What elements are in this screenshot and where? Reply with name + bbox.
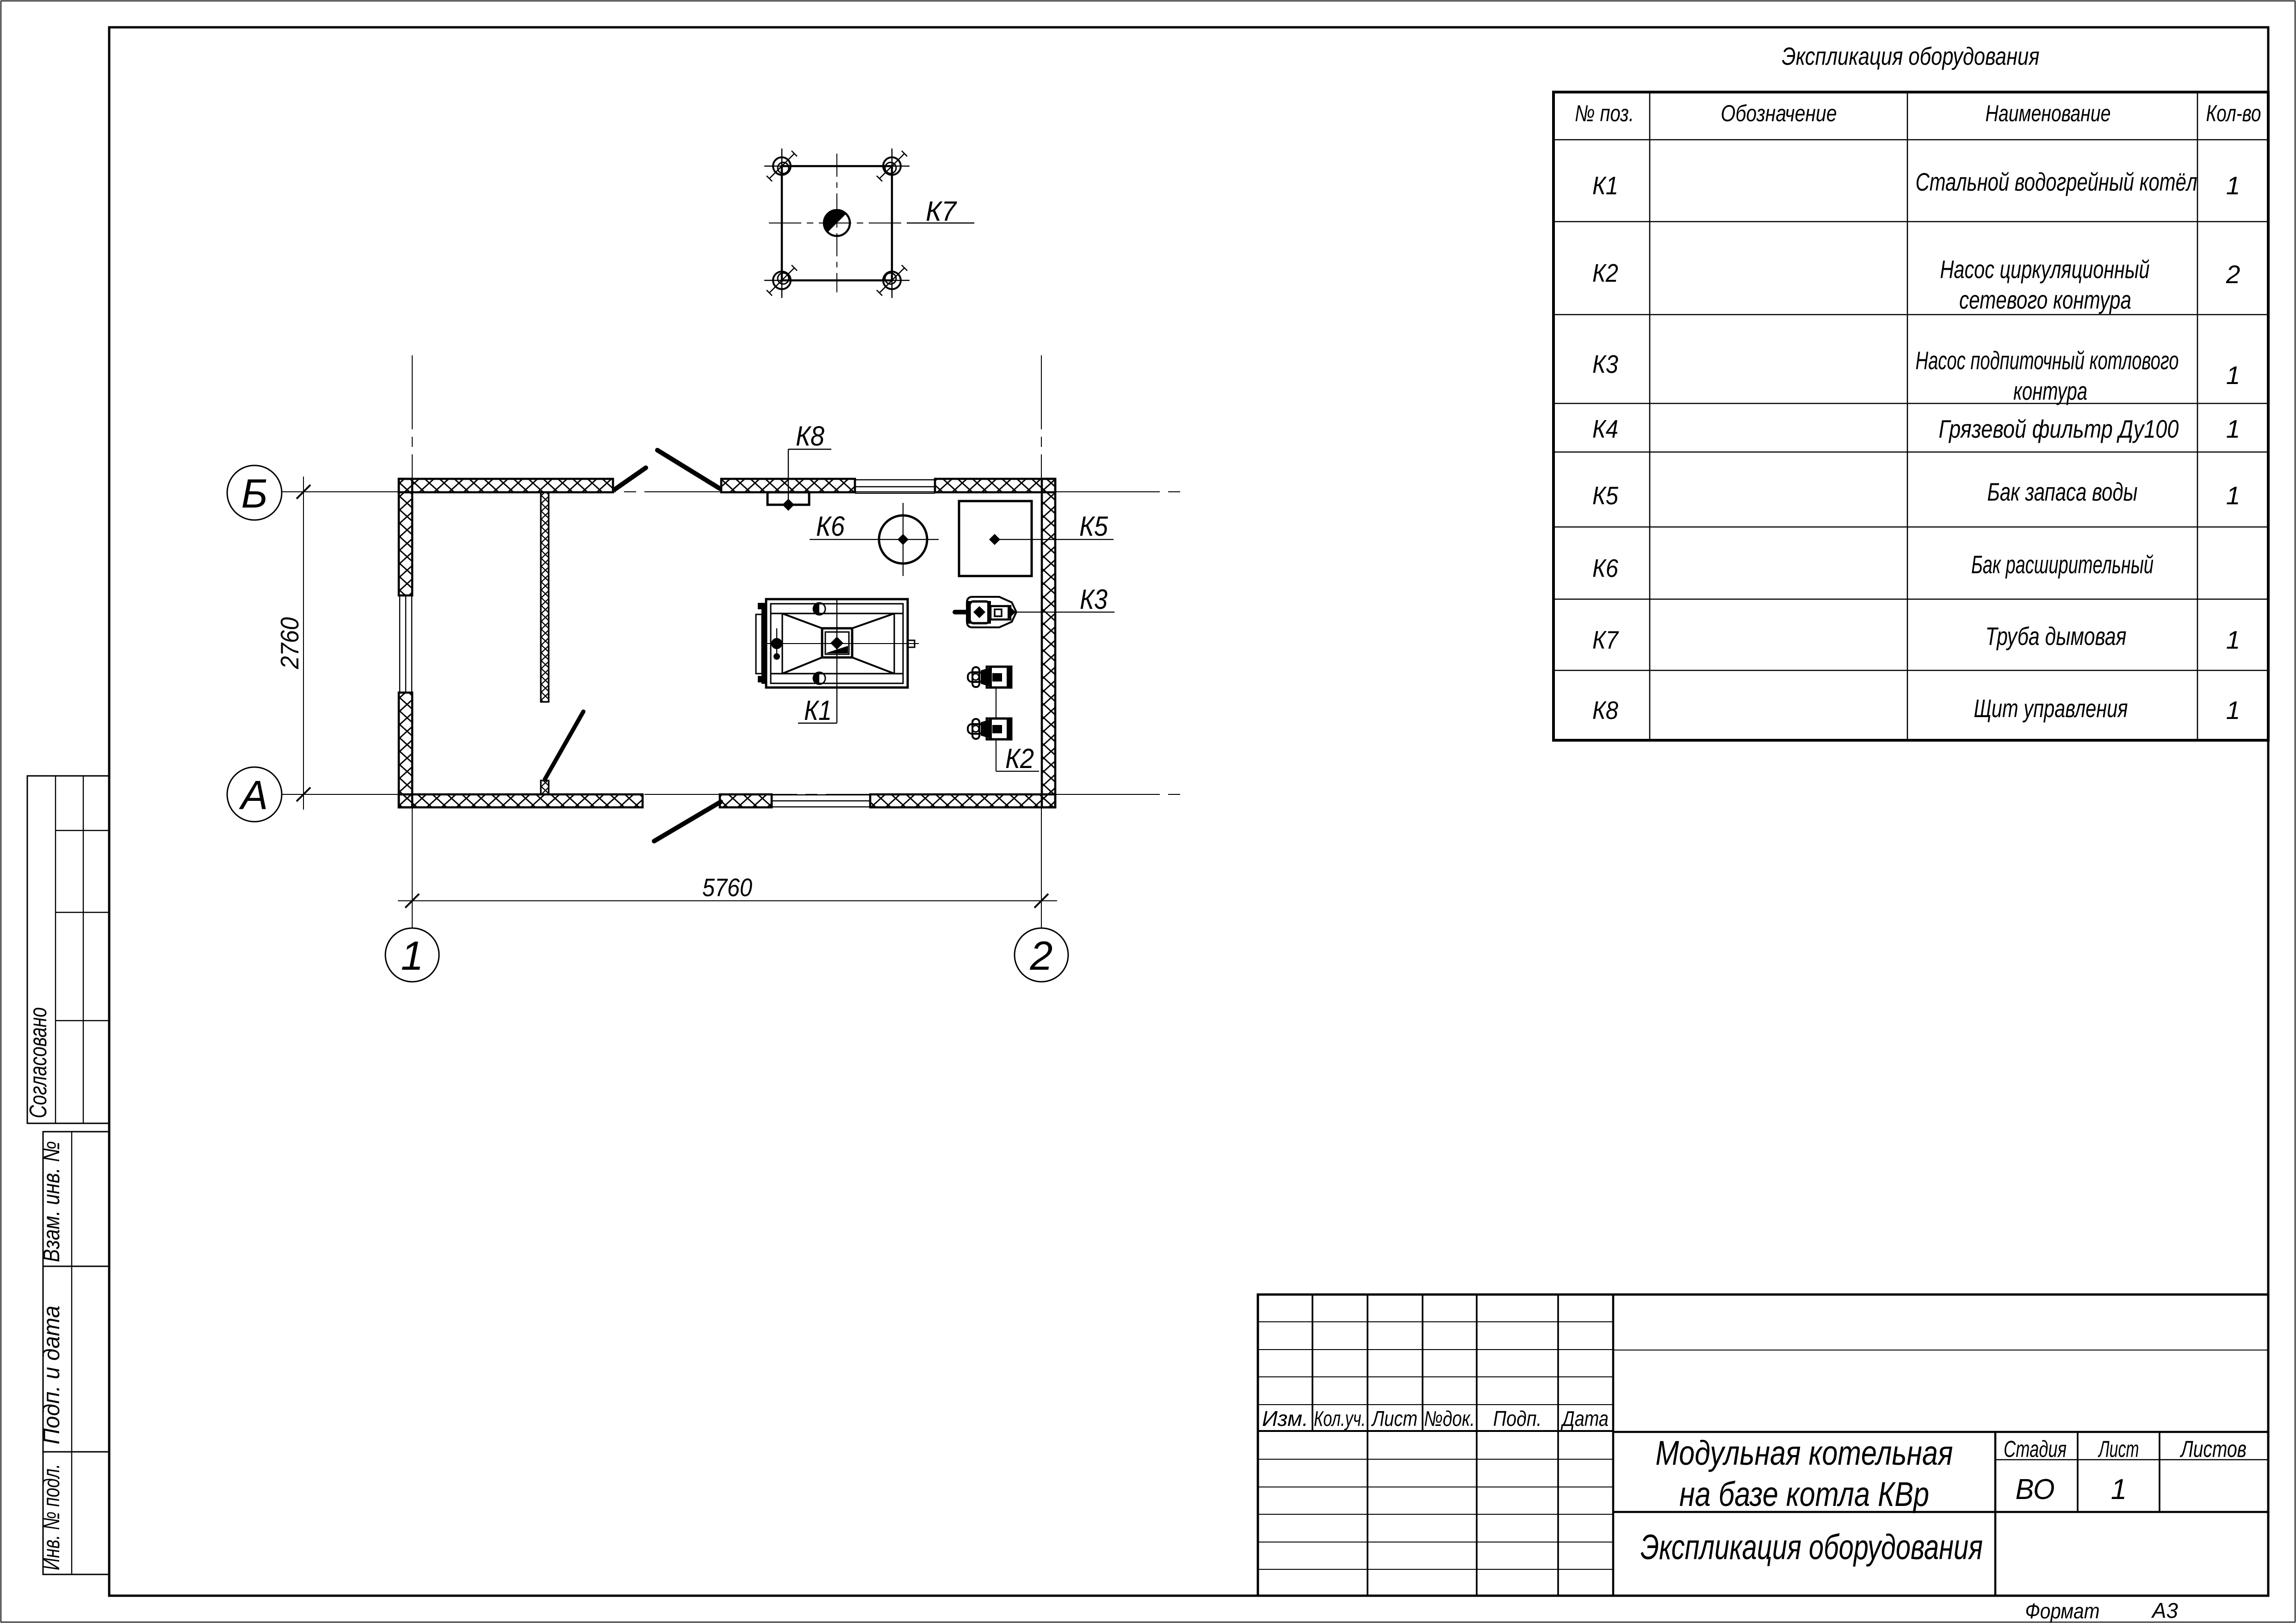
svg-text:№ поз.: № поз. — [1575, 100, 1634, 126]
svg-text:Взам. инв. №: Взам. инв. № — [38, 1141, 64, 1262]
svg-text:К8: К8 — [1592, 696, 1618, 725]
svg-text:Дата: Дата — [1560, 1406, 1609, 1431]
svg-text:К3: К3 — [1080, 584, 1108, 615]
svg-text:Модульная котельная: Модульная котельная — [1656, 1434, 1953, 1472]
svg-text:1: 1 — [2226, 415, 2240, 443]
svg-text:Формат: Формат — [2025, 1599, 2100, 1623]
svg-text:Бак запаса воды: Бак запаса воды — [1987, 477, 2138, 506]
svg-text:К3: К3 — [1592, 350, 1618, 378]
svg-text:Б: Б — [241, 471, 267, 516]
svg-text:А: А — [239, 772, 268, 818]
svg-text:Кол.уч.: Кол.уч. — [1314, 1406, 1366, 1431]
svg-text:К6: К6 — [1592, 554, 1618, 582]
svg-text:Насос подпиточный котлового: Насос подпиточный котлового — [1916, 346, 2179, 375]
svg-text:1: 1 — [2226, 361, 2240, 390]
svg-text:Согласовано: Согласовано — [25, 1007, 52, 1118]
svg-text:К8: К8 — [796, 421, 825, 452]
svg-text:К6: К6 — [816, 511, 845, 542]
svg-text:К5: К5 — [1592, 481, 1618, 510]
svg-text:сетевого контура: сетевого контура — [1959, 285, 2131, 314]
svg-text:1: 1 — [2226, 696, 2240, 725]
svg-text:Подп.: Подп. — [1493, 1406, 1542, 1431]
svg-text:А3: А3 — [2151, 1598, 2178, 1623]
svg-text:Кол-во: Кол-во — [2206, 100, 2261, 126]
svg-text:К1: К1 — [1592, 171, 1618, 200]
svg-text:ВО: ВО — [2016, 1474, 2055, 1505]
svg-text:на базе котла КВр: на базе котла КВр — [1679, 1475, 1929, 1513]
svg-text:К7: К7 — [1592, 626, 1619, 654]
svg-text:Экспликация оборудования: Экспликация оборудования — [1640, 1528, 1983, 1567]
svg-text:К2: К2 — [1005, 743, 1034, 774]
svg-text:2760: 2760 — [275, 617, 304, 669]
svg-text:1: 1 — [401, 933, 424, 979]
svg-text:1: 1 — [2226, 626, 2240, 654]
svg-text:Грязевой фильтр Ду100: Грязевой фильтр Ду100 — [1939, 415, 2179, 443]
svg-text:К7: К7 — [926, 196, 958, 227]
svg-text:К5: К5 — [1079, 511, 1108, 542]
svg-text:Инв. № подл.: Инв. № подл. — [38, 1464, 64, 1570]
svg-text:Изм.: Изм. — [1262, 1406, 1308, 1431]
svg-text:Подп. и дата: Подп. и дата — [38, 1306, 64, 1444]
svg-text:Бак расширительный: Бак расширительный — [1971, 550, 2154, 579]
svg-text:К1: К1 — [804, 695, 832, 726]
svg-text:контура: контура — [2013, 377, 2087, 405]
svg-text:№док.: №док. — [1424, 1406, 1475, 1431]
svg-text:1: 1 — [2111, 1474, 2127, 1505]
svg-text:К2: К2 — [1592, 259, 1618, 287]
svg-text:Труба дымовая: Труба дымовая — [1986, 622, 2127, 650]
svg-text:5760: 5760 — [702, 873, 752, 902]
svg-text:К4: К4 — [1592, 415, 1618, 443]
svg-text:Экспликация оборудования: Экспликация оборудования — [1782, 43, 2040, 70]
svg-text:Наименование: Наименование — [1986, 100, 2111, 126]
svg-text:2: 2 — [2226, 260, 2240, 289]
svg-text:1: 1 — [2226, 481, 2240, 510]
svg-text:Насос циркуляционный: Насос циркуляционный — [1940, 255, 2150, 284]
svg-text:Щит управления: Щит управления — [1974, 694, 2128, 723]
svg-text:1: 1 — [2226, 171, 2240, 200]
svg-text:Стальной водогрейный котёл: Стальной водогрейный котёл — [1916, 167, 2197, 196]
svg-text:2: 2 — [1030, 933, 1053, 979]
svg-text:Обозначение: Обозначение — [1721, 100, 1837, 126]
svg-text:Лист: Лист — [2098, 1436, 2139, 1462]
svg-text:Лист: Лист — [1371, 1406, 1417, 1431]
svg-text:Стадия: Стадия — [2004, 1436, 2067, 1462]
svg-text:Листов: Листов — [2180, 1436, 2246, 1462]
